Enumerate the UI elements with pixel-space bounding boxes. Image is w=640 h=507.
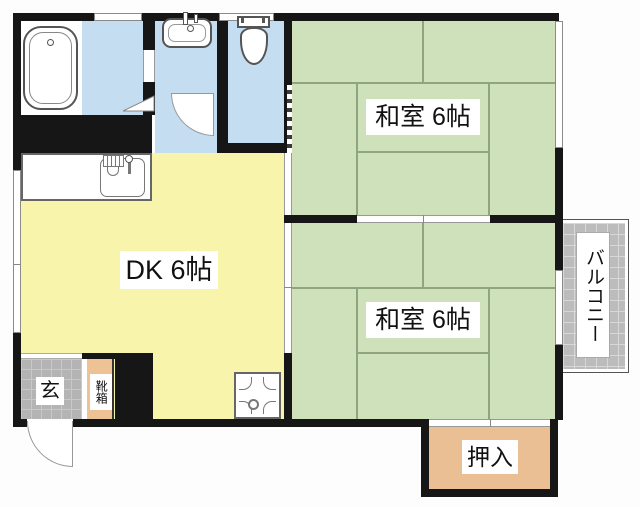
window-bathroom-top — [94, 13, 142, 21]
window-mullion — [13, 264, 21, 265]
tatami-line — [422, 223, 424, 287]
window-washitsu-upper-right — [555, 21, 563, 148]
wall-bottom-left — [13, 419, 27, 427]
wall-between-rooms-left — [284, 215, 357, 223]
washbasin-faucet — [183, 12, 188, 25]
dk-label: DK 6帖 — [120, 251, 218, 289]
fusuma-dk-lower-room — [284, 223, 292, 353]
wall-entrance-block — [115, 353, 153, 419]
wall-between-rooms-right — [490, 215, 558, 223]
sink-faucet-knob — [125, 155, 133, 163]
bathroom-door-gap — [143, 50, 155, 82]
fusuma-tick — [423, 215, 424, 223]
wall-block-below-bath — [13, 115, 152, 153]
tatami-line — [488, 289, 490, 419]
wall-left-lower — [13, 333, 21, 427]
tatami-line — [292, 82, 555, 84]
oshiire-label: 押入 — [462, 440, 518, 474]
tatami-line — [356, 289, 358, 419]
wall-oshiire-left — [421, 419, 429, 497]
toilet-tank-mark — [241, 18, 244, 23]
balcony-label: バルコニー — [576, 232, 610, 358]
tatami-line — [358, 352, 488, 354]
wall-toilet-tatami-upper — [284, 21, 292, 85]
wall-top-right — [274, 13, 559, 21]
wall-oshiire-bottom — [421, 489, 558, 497]
bathtub-drain — [47, 39, 54, 46]
oshiire-door-tick — [490, 419, 491, 427]
tatami-line — [292, 287, 555, 289]
wall-washroom-toilet — [217, 21, 228, 153]
wall-dk-tatami-lower — [284, 353, 292, 419]
tatami-line — [358, 151, 488, 153]
fusuma-dk-upper-room — [284, 153, 292, 215]
wall-oshiire-right — [550, 419, 558, 497]
washitsu-upper-label: 和室 6帖 — [366, 99, 480, 135]
wall-right-mid — [555, 218, 563, 270]
toilet-tank-mark — [262, 18, 265, 23]
sink-drainer-grid — [103, 155, 124, 167]
toilet-tatami-hatch — [287, 85, 292, 153]
wall-right-lower — [555, 345, 563, 420]
genkan-label: 玄 — [36, 377, 64, 405]
wall-top-left — [13, 13, 94, 21]
wall-above-shoebox — [82, 353, 115, 359]
washer-pan-corner — [263, 401, 276, 414]
tatami-line — [356, 84, 358, 215]
entrance-door-swing — [27, 421, 73, 467]
tatami-line — [488, 84, 490, 215]
wall-toilet-bottom — [217, 143, 292, 153]
fusuma-tick — [284, 287, 292, 288]
washitsu-lower-label: 和室 6帖 — [366, 302, 480, 338]
tatami-line — [422, 21, 424, 82]
floor-plan: 和室 6帖 和室 6帖 DK 6帖 押入 玄 靴箱 バルコニー — [0, 0, 640, 507]
wall-bath-washroom-top — [143, 21, 155, 50]
washbasin-faucet-handle — [194, 14, 198, 23]
bathroom-door-triangle — [122, 95, 155, 113]
washbasin-faucet-knob — [187, 25, 194, 32]
wall-right-upper — [555, 148, 563, 218]
wall-bottom-main — [73, 419, 425, 427]
washer-pan-drain — [248, 399, 259, 410]
shoebox-label: 靴箱 — [90, 374, 112, 410]
window-washitsu-lower-right — [555, 270, 563, 345]
window-dk-left — [13, 170, 21, 333]
